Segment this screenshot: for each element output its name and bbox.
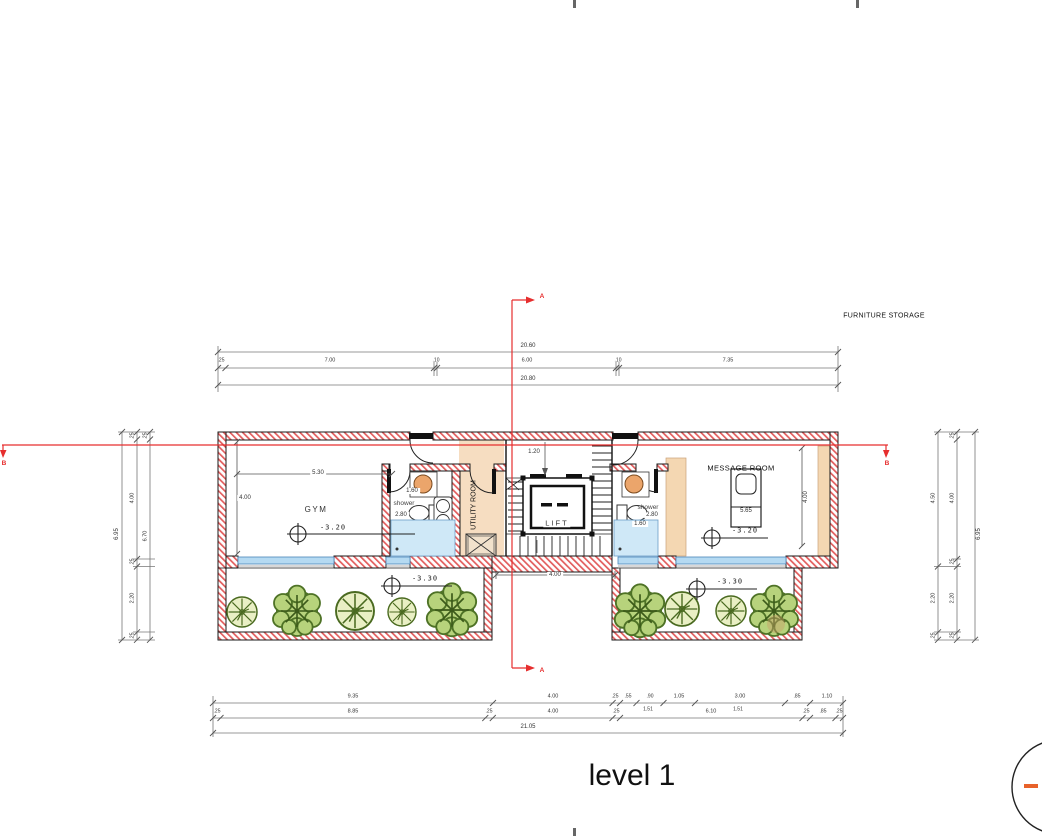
dim-left-mid: 2.20 [130, 593, 136, 604]
toilet-icon [409, 506, 429, 521]
dim-bottom-total: 21.05 [520, 724, 535, 730]
dim-lift-offset: 1.20 [526, 449, 542, 455]
level-planter-right: -3.30 [717, 579, 743, 586]
dim-shower-left-width: 1.60 [404, 488, 420, 494]
dim-top-seg: 7.35 [723, 358, 734, 364]
dim-left-mid: .25 [131, 433, 136, 440]
tree-icon [227, 597, 257, 627]
dim-left-mid: .25 [131, 633, 136, 640]
dim-right-mid: 4.00 [950, 493, 956, 504]
dim-bottom-row1: .90 [647, 695, 654, 700]
dim-top-seg: 7.00 [325, 358, 336, 364]
section-arrow-icon [526, 665, 535, 672]
dim-left-overall: 6.95 [114, 528, 120, 540]
shower-tray-left [391, 520, 455, 556]
dim-bottom-row1: 9.35 [348, 694, 359, 700]
dim-top-seg: 6.00 [522, 358, 533, 364]
room-label-utility: UTILITY ROOM [471, 480, 478, 530]
dimension-lines [118, 346, 979, 737]
dim-bottom-row2: .25 [836, 710, 843, 715]
section-arrow-icon [0, 450, 7, 458]
note-furniture-storage: FURNITURE STORAGE [843, 313, 925, 320]
dim-left-inner: .25 [144, 433, 149, 440]
level-planter-left: -3.30 [412, 576, 438, 583]
dim-gym-depth: 4.00 [237, 495, 253, 501]
tree-icon [716, 596, 746, 626]
room-label-shower-left: shower [394, 501, 415, 508]
dim-bottom-row1: 3.00 [735, 694, 746, 700]
dim-left-mid: 4.00 [130, 493, 136, 504]
dim-bottom-row2: 6.10 [706, 709, 717, 715]
level-gym: -3.20 [320, 525, 346, 532]
dim-top-overall-lower: 20.80 [520, 376, 535, 382]
dim-bottom-row2: .25 [486, 710, 493, 715]
floor-plan-drawing [0, 0, 1042, 836]
section-arrow-icon [883, 450, 890, 458]
north-dash-icon [1024, 784, 1038, 788]
tree-icon [388, 598, 416, 626]
dim-top-seg: .10 [615, 359, 622, 364]
dim-gym-width: 5.30 [310, 470, 326, 476]
dim-right-room: 4.50 [931, 493, 937, 504]
dim-top-seg: .10 [433, 359, 440, 364]
dim-bottom-row2: .25 [613, 710, 620, 715]
tree-icon [615, 584, 665, 637]
dim-bottom-row1: 1.05 [674, 694, 685, 700]
dim-stair-bay: 4.00 [547, 572, 563, 578]
dim-shower-right-depth: 2.80 [644, 512, 660, 518]
dim-bottom-row1: .55 [625, 695, 632, 700]
dimension-ticks [119, 349, 978, 736]
drawing-title: level 1 [589, 761, 676, 791]
dim-bottom-row1: .85 [794, 695, 801, 700]
dim-left-inner: 6.70 [143, 531, 149, 542]
dim-bottom-row2: .85 [820, 710, 827, 715]
tree-icon [336, 592, 374, 630]
dim-left-mid: .25 [131, 559, 136, 566]
dim-bottom-row1: 4.00 [548, 694, 559, 700]
dim-bottom-row2: .25 [803, 710, 810, 715]
tree-icon [665, 592, 699, 626]
section-label-b-right: B [885, 461, 890, 468]
title-circle [1012, 740, 1042, 834]
section-label-a-bottom: A [540, 668, 545, 675]
tree-icon [273, 586, 321, 636]
dim-shower-right-width: 1.60 [632, 521, 648, 527]
tree-icon [427, 583, 477, 636]
dim-bottom-row2: .25 [214, 710, 221, 715]
section-label-a-top: A [540, 294, 545, 301]
dim-message-depth: 4.00 [803, 489, 809, 505]
section-arrow-icon [526, 297, 535, 304]
floor-plan-canvas: FURNITURE STORAGE level 1 GYM MESSAGE RO… [0, 0, 1042, 836]
dim-massage-table: 5.65 [738, 508, 754, 514]
room-label-lift: LIFT [543, 519, 570, 527]
dim-right-room: 2.20 [931, 593, 937, 604]
dim-right-room: .25 [932, 633, 937, 640]
dim-top-overall-upper: 20.60 [520, 343, 535, 349]
dim-right-overall: 6.95 [976, 528, 982, 540]
section-label-b-left: B [2, 461, 7, 468]
dim-right-mid: 2.20 [950, 593, 956, 604]
dim-top-seg: .25 [218, 359, 225, 364]
dim-right-mid: .25 [951, 633, 956, 640]
level-message: -3.20 [732, 528, 758, 535]
dim-right-mid: .25 [951, 433, 956, 440]
room-label-shower-right: shower [638, 505, 659, 512]
room-label-gym: GYM [305, 506, 328, 514]
basin-icon [625, 475, 643, 493]
dim-shower-left-depth: 2.80 [393, 512, 409, 518]
dim-bottom-row2: 4.00 [548, 709, 559, 715]
interior-boundaries [218, 440, 802, 568]
room-label-message: MESSAGE ROOM [707, 464, 774, 472]
dim-bottom-row1: .25 [612, 695, 619, 700]
dim-bottom-sub: 1.51 [733, 708, 743, 713]
dim-bottom-sub: 1.51 [643, 708, 653, 713]
dim-right-mid: .25 [951, 559, 956, 566]
dim-bottom-row2: 8.85 [348, 709, 359, 715]
dim-bottom-row1: 1.10 [822, 694, 833, 700]
